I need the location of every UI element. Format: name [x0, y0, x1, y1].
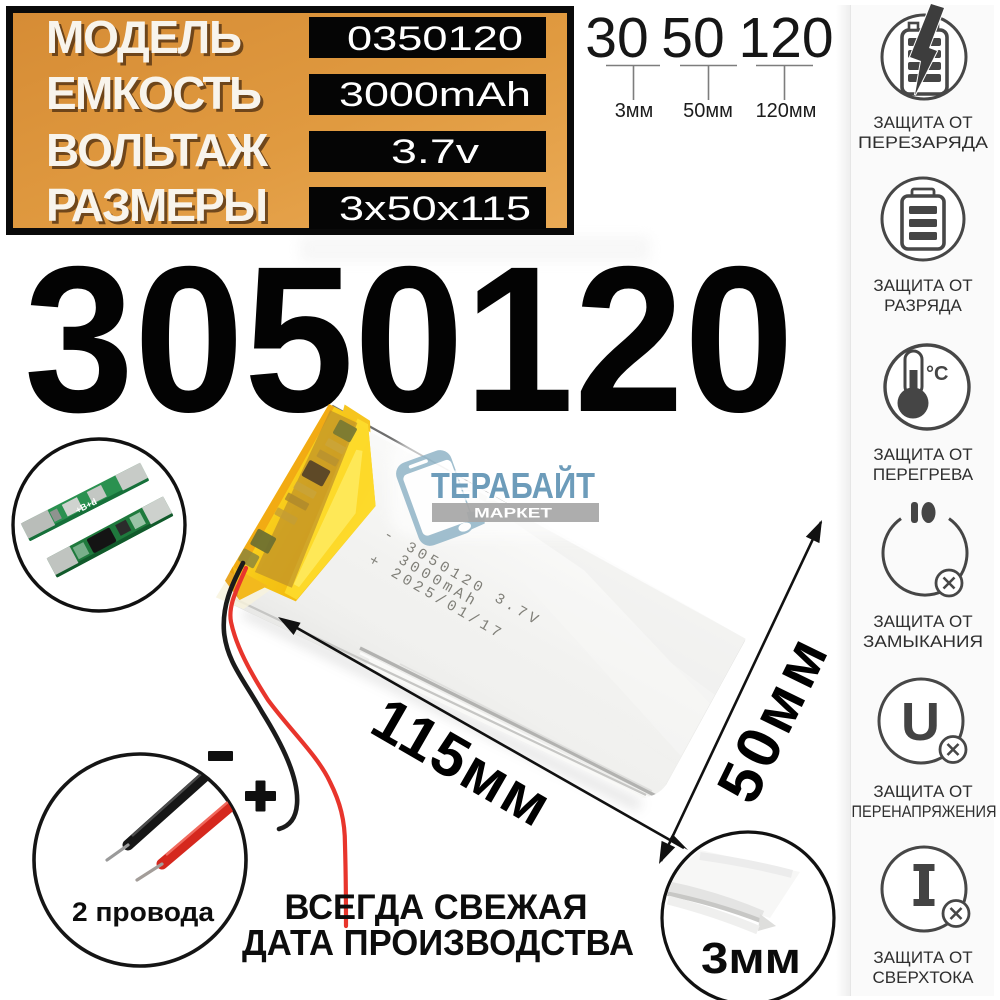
svg-text:ЕМКОСТЬ: ЕМКОСТЬ — [46, 67, 262, 119]
svg-text:ЗАЩИТА ОТ: ЗАЩИТА ОТ — [873, 612, 972, 631]
svg-text:ЗАЩИТА ОТ: ЗАЩИТА ОТ — [873, 276, 972, 295]
svg-text:3000mAh: 3000mAh — [339, 76, 531, 114]
svg-text:50: 50 — [661, 6, 724, 70]
svg-text:ЗАЩИТА ОТ: ЗАЩИТА ОТ — [873, 948, 972, 967]
svg-text:U: U — [901, 692, 940, 752]
svg-text:ДАТА ПРОИЗВОДСТВА: ДАТА ПРОИЗВОДСТВА — [242, 922, 634, 963]
svg-text:50мм: 50мм — [683, 100, 733, 122]
svg-text:ВОЛЬТАЖ: ВОЛЬТАЖ — [46, 124, 268, 176]
svg-text:РАЗРЯДА: РАЗРЯДА — [884, 296, 962, 315]
svg-text:МАРКЕТ: МАРКЕТ — [474, 506, 553, 521]
svg-text:2 провода: 2 провода — [72, 897, 215, 927]
svg-text:3мм: 3мм — [701, 934, 801, 983]
svg-text:ЗАЩИТА ОТ: ЗАЩИТА ОТ — [873, 445, 972, 464]
svg-text:30: 30 — [585, 6, 648, 70]
svg-text:120мм: 120мм — [756, 100, 817, 122]
svg-text:°C: °C — [926, 363, 948, 385]
svg-text:ПЕРЕЗАРЯДА: ПЕРЕЗАРЯДА — [858, 133, 989, 152]
svg-text:СВЕРХТОКА: СВЕРХТОКА — [873, 968, 975, 987]
svg-text:ПЕРЕНАПРЯЖЕНИЯ: ПЕРЕНАПРЯЖЕНИЯ — [852, 802, 997, 821]
svg-text:ЗАМЫКАНИЯ: ЗАМЫКАНИЯ — [863, 632, 983, 651]
svg-text:0350120: 0350120 — [347, 20, 523, 58]
svg-text:3.7v: 3.7v — [391, 133, 479, 171]
svg-text:ЗАЩИТА ОТ: ЗАЩИТА ОТ — [873, 113, 972, 132]
svg-text:ЗАЩИТА ОТ: ЗАЩИТА ОТ — [873, 782, 972, 801]
svg-text:120: 120 — [738, 6, 833, 70]
svg-text:3мм: 3мм — [615, 100, 654, 122]
svg-text:ПЕРЕГРЕВА: ПЕРЕГРЕВА — [873, 465, 974, 484]
svg-text:ТЕРАБАЙТ: ТЕРАБАЙТ — [431, 464, 595, 506]
svg-text:3x50x115: 3x50x115 — [339, 190, 531, 228]
svg-text:МОДЕЛЬ: МОДЕЛЬ — [46, 11, 242, 63]
svg-text:3050120: 3050120 — [24, 224, 794, 456]
